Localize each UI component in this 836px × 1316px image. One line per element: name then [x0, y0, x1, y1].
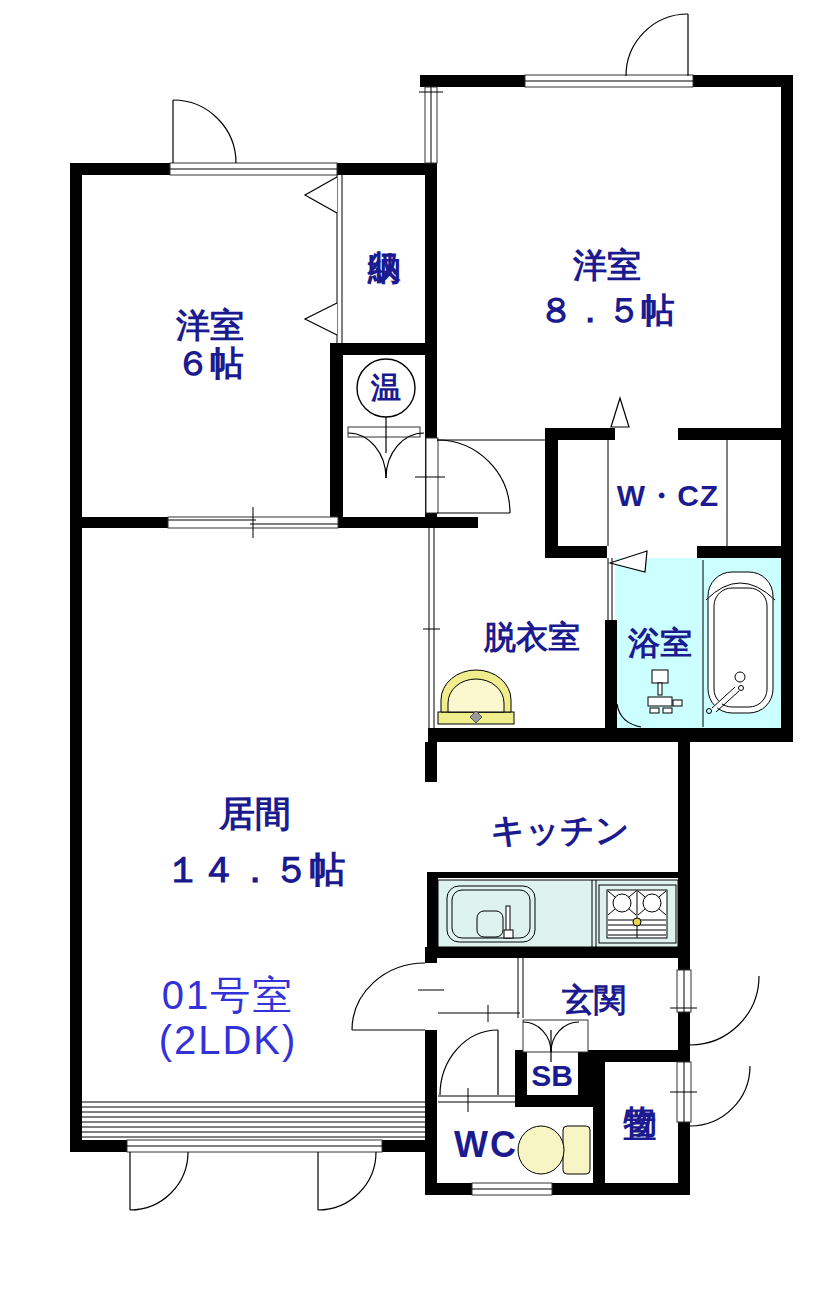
room-label-western85: 洋室 ８．５帖 — [487, 243, 727, 333]
room-label-kitchen: キッチン — [460, 812, 660, 848]
room-label-wcz: W・CZ — [588, 480, 748, 512]
room-label-water-heater: 温 — [366, 372, 406, 404]
door-west6-icon — [173, 100, 236, 163]
stove-icon — [599, 885, 676, 943]
room-label-toilet: WC — [446, 1126, 526, 1164]
door-toilet-icon — [440, 1030, 498, 1095]
door-west85-icon — [626, 14, 688, 76]
room-label-living: 居間 １４．５帖 — [120, 786, 390, 898]
door-recess — [426, 438, 438, 513]
bathtub-icon — [706, 572, 775, 714]
room-label-entrance: 玄関 — [524, 983, 664, 1017]
toilet-icon — [518, 1126, 590, 1174]
room-label-bathroom: 浴室 — [615, 626, 705, 660]
veranda-hatch — [82, 1102, 427, 1137]
door-entrance-hall-icon — [352, 963, 425, 1030]
washbasin-icon — [438, 670, 514, 724]
terrace-door-right-icon — [318, 1152, 376, 1210]
room-label-western6: 洋室 ６帖 — [110, 306, 310, 382]
room-label-storeroom: 物置 — [620, 1080, 660, 1084]
folding-door-wcz-icon — [611, 398, 629, 427]
room-label-closet: 収納 — [366, 224, 402, 228]
front-door-icon — [690, 976, 759, 1045]
unit-number-label: 01号室 (2LDK) — [98, 973, 358, 1063]
floorplan-drawing — [0, 0, 836, 1316]
double-door-heater-icon — [348, 415, 424, 478]
room-label-dressing: 脱衣室 — [442, 620, 622, 654]
room-label-shoebox: SB — [522, 1060, 582, 1092]
door-dressing-icon — [437, 440, 510, 513]
terrace-door-left-icon — [130, 1152, 188, 1210]
door-recess — [348, 427, 420, 437]
storeroom-door-icon — [690, 1066, 750, 1126]
floorplan-page: 洋室 ６帖 洋室 ８．５帖 収納 温 W・CZ 脱衣室 浴室 居間 １４．５帖 … — [0, 0, 836, 1316]
